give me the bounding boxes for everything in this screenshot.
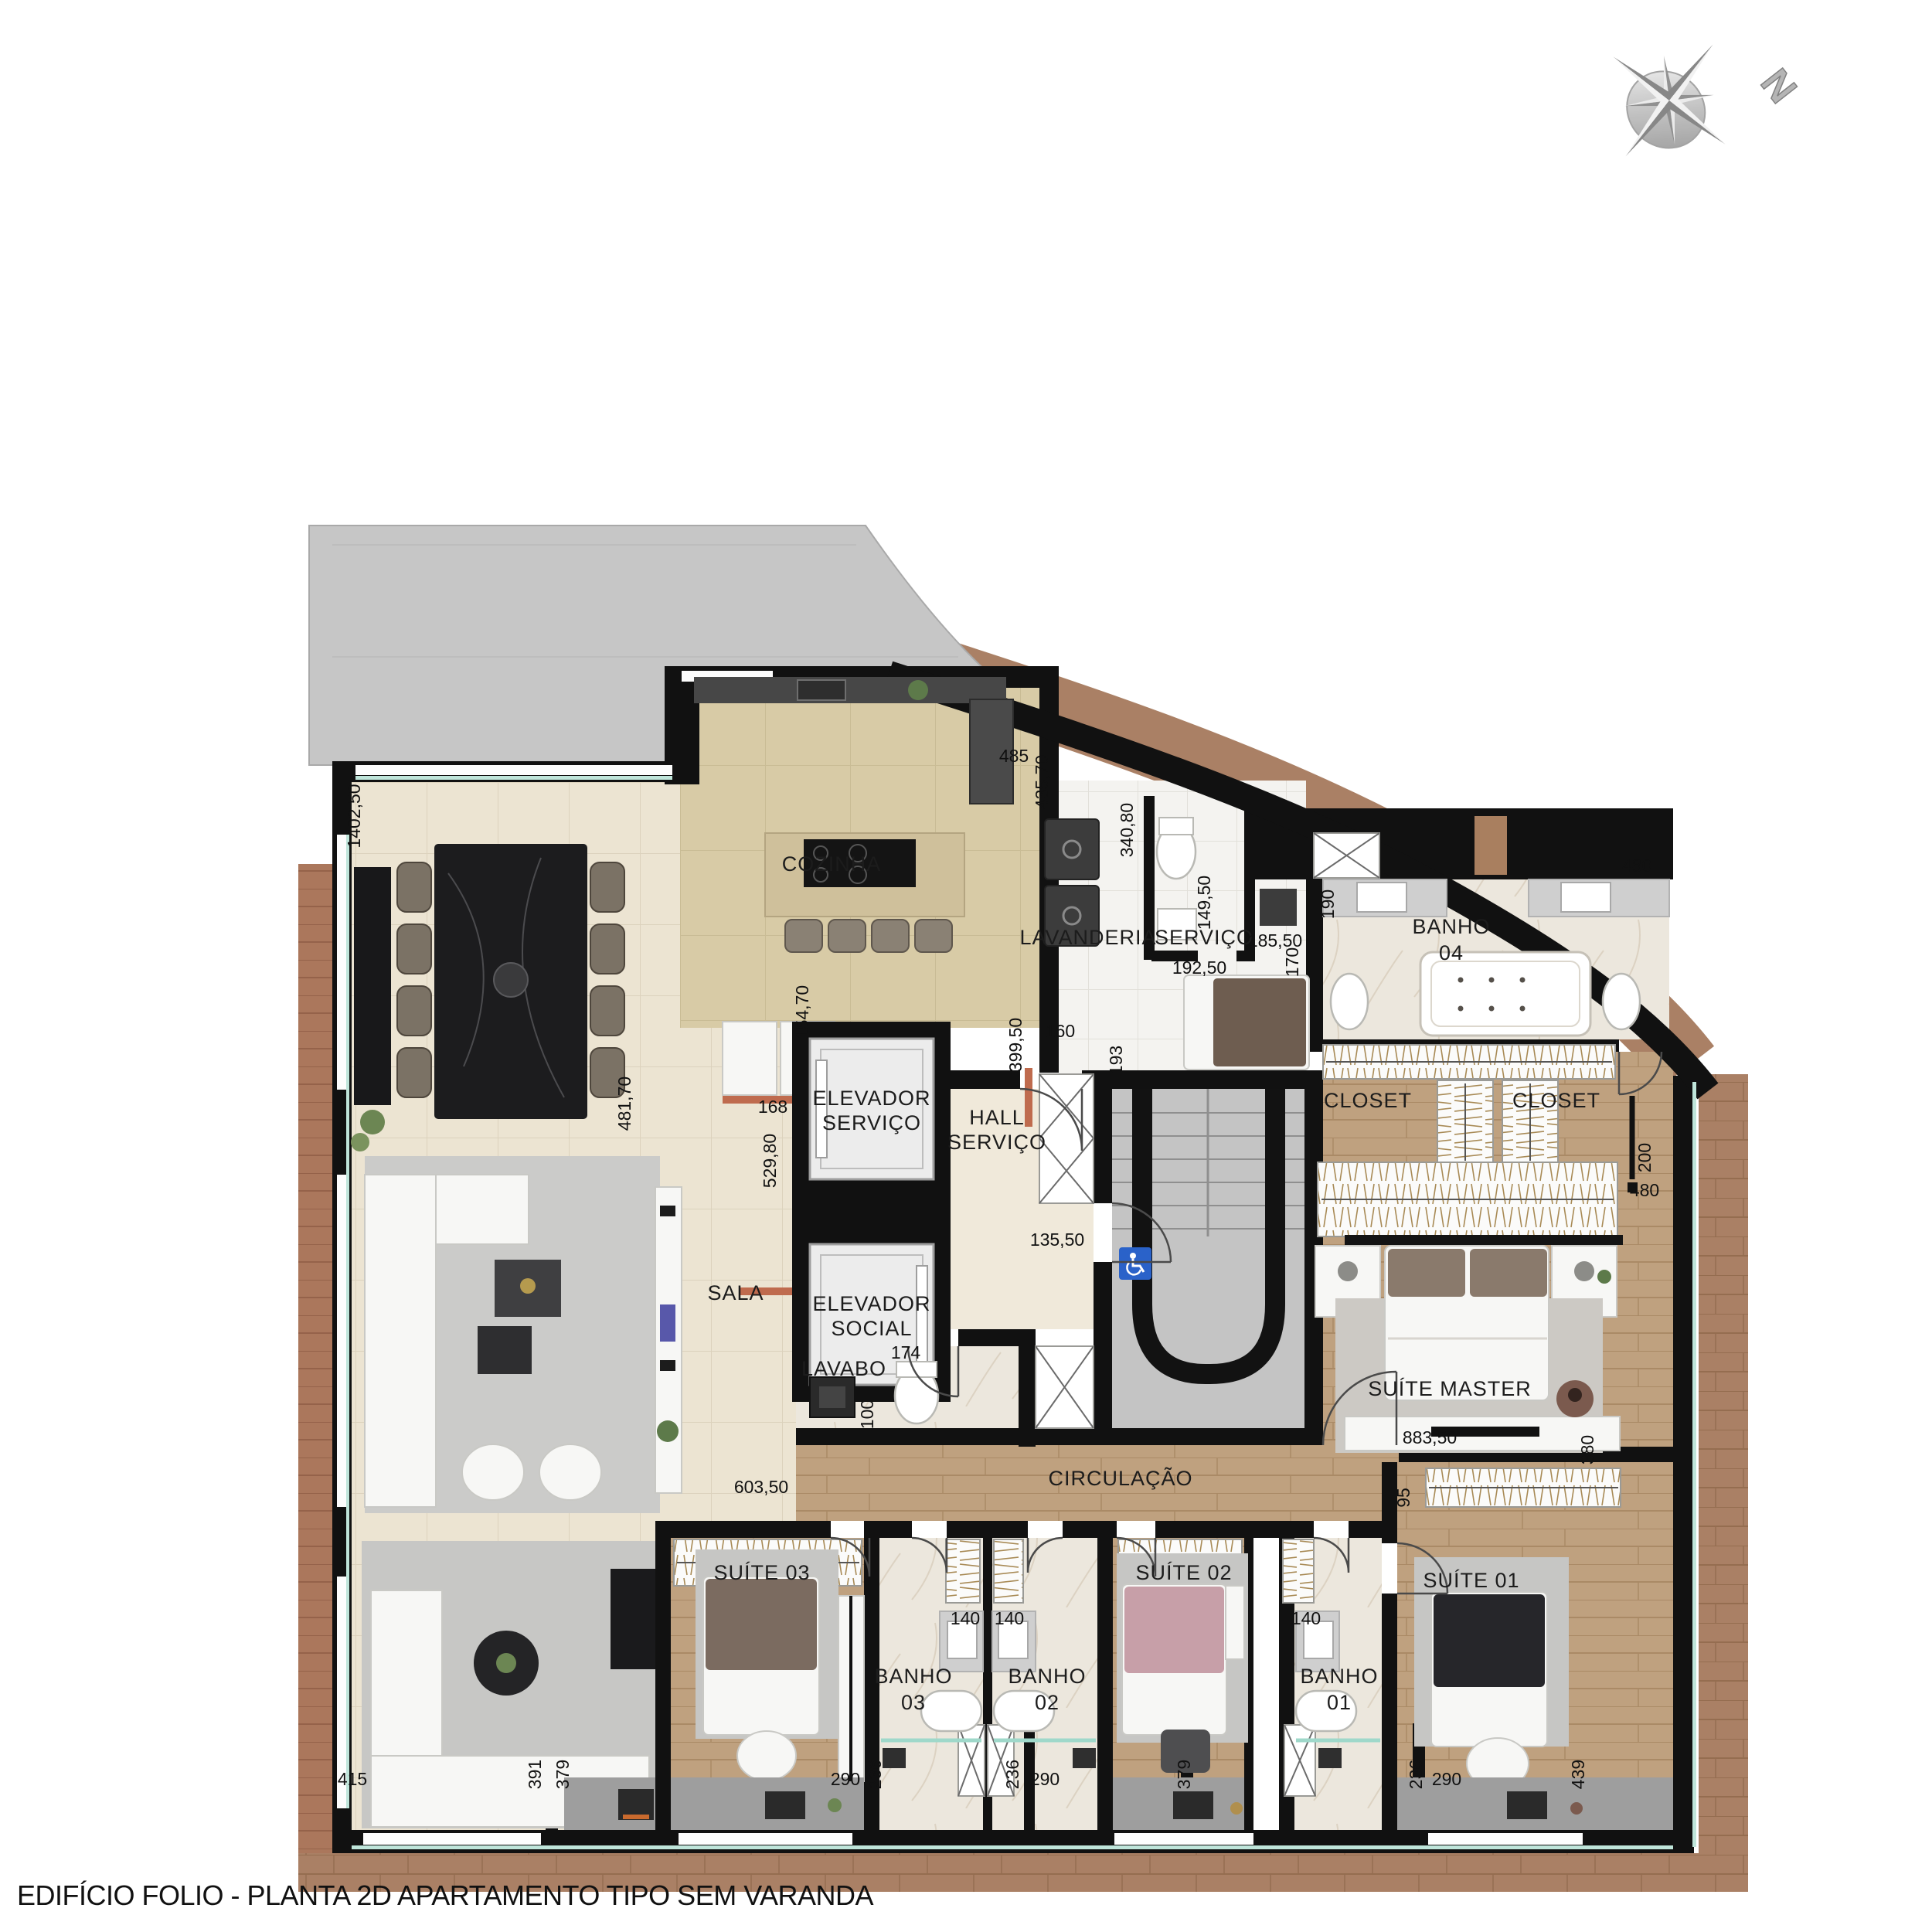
dimension-label: 603,50: [734, 1477, 788, 1497]
dimension-label: 480: [1622, 855, 1651, 876]
shower: [883, 1748, 906, 1768]
chair: [737, 1731, 796, 1781]
dimension-label: 485: [999, 746, 1029, 766]
label-lavabo: LAVABO: [801, 1357, 886, 1380]
armchair: [462, 1444, 524, 1500]
label-lavanderia: LAVANDERIA: [1019, 926, 1156, 949]
dimension-label: 380: [1577, 1435, 1597, 1464]
shower: [1318, 1748, 1342, 1768]
service-cabinet: [1260, 889, 1297, 926]
floor-plan-drawing: COZINHA LAVANDERIA SERVIÇO BANHO 04 CLOS…: [0, 0, 1932, 1932]
dimension-label: 480: [1630, 1180, 1659, 1200]
toilet: [1331, 974, 1368, 1029]
dimension-label: 168: [758, 1097, 787, 1117]
label-banho03: BANHO: [874, 1665, 952, 1688]
shower: [1073, 1748, 1096, 1768]
label-suite02: SUÍTE 02: [1135, 1561, 1232, 1584]
dimension-label: 170: [1282, 947, 1302, 977]
dimension-label: 379: [553, 1760, 573, 1789]
svg-text:02: 02: [1035, 1691, 1060, 1714]
armchair: [539, 1444, 601, 1500]
living-area: [362, 1156, 682, 1828]
label-closet-right: CLOSET: [1512, 1089, 1600, 1112]
banho04-service-door: [1475, 816, 1507, 875]
svg-text:SOCIAL: SOCIAL: [831, 1317, 912, 1340]
dimension-label: 1402,50: [344, 784, 364, 848]
label-elevador-servico: ELEVADOR: [812, 1087, 930, 1110]
label-banho02: BANHO: [1008, 1665, 1086, 1688]
dimension-label: 192,50: [1172, 957, 1226, 978]
dimension-label: 379: [1174, 1760, 1194, 1789]
kitchen-sink: [798, 680, 845, 700]
label-sala: SALA: [707, 1281, 764, 1304]
page-title: EDIFÍCIO FOLIO - PLANTA 2D APARTAMENTO T…: [17, 1879, 873, 1912]
toilet: [1603, 974, 1640, 1029]
dimension-label: 100: [857, 1400, 877, 1429]
svg-text:SERVIÇO: SERVIÇO: [947, 1131, 1046, 1154]
compass-north-label: N: [1752, 61, 1805, 111]
label-suite01: SUÍTE 01: [1423, 1569, 1519, 1592]
deck-right: [1699, 1074, 1748, 1892]
media-ledge: [564, 1777, 1673, 1830]
dimension-label: 415: [338, 1769, 367, 1789]
stone-panel: [611, 1569, 655, 1669]
dimension-label: 290: [1432, 1769, 1461, 1789]
deck-left: [298, 864, 334, 1856]
label-elevador-social: ELEVADOR: [812, 1292, 930, 1315]
coffee-table: [478, 1326, 532, 1374]
label-banho01: BANHO: [1300, 1665, 1378, 1688]
label-circulacao: CIRCULAÇÃO: [1048, 1466, 1192, 1490]
dimension-label: 193: [1106, 1046, 1126, 1075]
sink: [1357, 883, 1406, 912]
dimension-label: 439: [1568, 1760, 1588, 1789]
pantry-cabinet: [723, 1022, 777, 1095]
floor-plan-page: COZINHA LAVANDERIA SERVIÇO BANHO 04 CLOS…: [0, 0, 1932, 1932]
svg-text:SERVIÇO: SERVIÇO: [822, 1111, 921, 1134]
sink: [1561, 883, 1611, 912]
toilet: [921, 1691, 981, 1731]
dimension-label: 340,80: [1117, 803, 1137, 857]
dimension-label: 140: [951, 1608, 980, 1628]
compass-icon: N: [1570, 1, 1805, 200]
dimension-label: 236: [1406, 1760, 1426, 1789]
svg-text:01: 01: [1327, 1691, 1352, 1714]
label-suite03: SUÍTE 03: [713, 1561, 810, 1584]
dimension-label: 174: [891, 1342, 921, 1362]
dimension-label: 190: [1318, 889, 1338, 919]
label-suite-master: SUÍTE MASTER: [1368, 1377, 1532, 1400]
dimension-label: 399,50: [1005, 1018, 1026, 1072]
dimension-label: 481,70: [614, 1077, 634, 1131]
plant: [908, 680, 928, 700]
dimension-label: 154,70: [792, 985, 812, 1039]
sofa: [365, 1175, 436, 1507]
dimension-label: 435,70: [1032, 755, 1052, 809]
laundry-sink: [1045, 819, 1099, 879]
dimension-label: 290: [1030, 1769, 1060, 1789]
dimension-label: 149,50: [1194, 876, 1214, 930]
dimension-label: 200: [1634, 1143, 1655, 1172]
dimension-label: 529,80: [760, 1134, 780, 1188]
svg-text:04: 04: [1439, 941, 1464, 964]
bathtub: [1420, 952, 1590, 1036]
label-hall-servico: HALL: [969, 1106, 1025, 1129]
dimension-label: 95: [1393, 1488, 1413, 1508]
sideboard: [354, 867, 391, 1105]
dimension-label: 391: [525, 1760, 545, 1789]
label-closet-left: CLOSET: [1324, 1089, 1412, 1112]
dimension-label: 236: [1002, 1760, 1022, 1789]
dimension-label: 290: [831, 1769, 860, 1789]
label-cozinha: COZINHA: [782, 852, 882, 876]
gourmet-counter: [694, 677, 1006, 703]
accessibility-icon: [1119, 1247, 1151, 1280]
dimension-label: 160: [1046, 1021, 1075, 1041]
dimension-label: 236: [865, 1760, 885, 1789]
label-banho04: BANHO: [1412, 915, 1490, 938]
dimension-label: 140: [995, 1608, 1024, 1628]
svg-text:03: 03: [901, 1691, 926, 1714]
dimension-label: 883,50: [1403, 1427, 1457, 1447]
dimension-label: 140: [1291, 1608, 1321, 1628]
dimension-label: 135,50: [1030, 1230, 1084, 1250]
